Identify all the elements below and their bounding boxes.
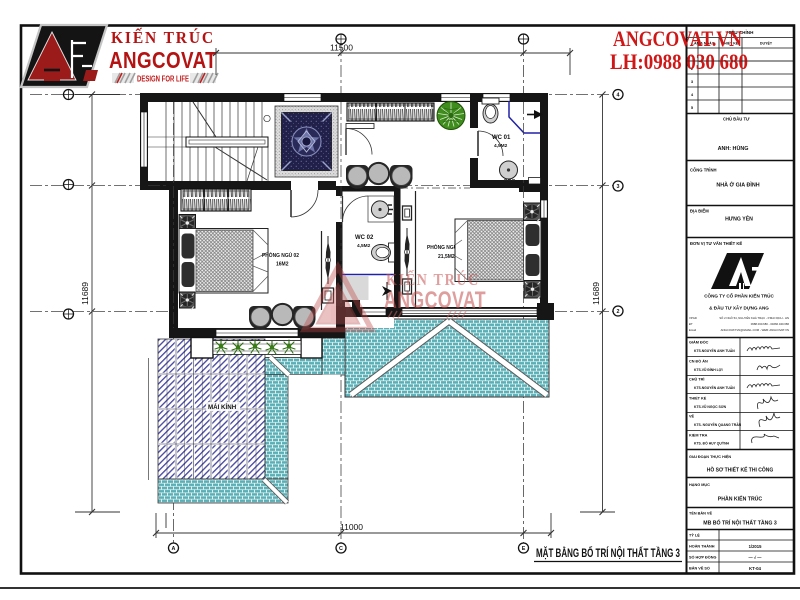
svg-text:CN ĐỒ ÁN: CN ĐỒ ÁN [689,359,708,364]
svg-text:ĐỊA ĐIỂM: ĐỊA ĐIỂM [690,209,709,214]
svg-text:MB BỐ TRÍ NỘI THẤT TẦNG 3: MB BỐ TRÍ NỘI THẤT TẦNG 3 [703,519,777,527]
svg-text:PHẦN KIẾN TRÚC: PHẦN KIẾN TRÚC [718,496,763,503]
svg-text:CÔNG TY CỔ PHẦN KIẾN TRÚC: CÔNG TY CỔ PHẦN KIẾN TRÚC [704,292,774,299]
svg-text:— √ —: — √ — [748,555,762,560]
svg-text:ĐƠN VỊ TƯ VẤN THIẾT KẾ: ĐƠN VỊ TƯ VẤN THIẾT KẾ [690,241,742,246]
svg-text:ANGCOVAT: ANGCOVAT [109,47,217,73]
svg-text:HỒ SƠ THIẾT KẾ THI CÔNG: HỒ SƠ THIẾT KẾ THI CÔNG [707,466,774,474]
svg-text:0988.030.680 - 04666.040.686: 0988.030.680 - 04666.040.686 [751,322,790,326]
svg-text:ANGCOVAT: ANGCOVAT [384,287,486,314]
svg-text:Email: Email [689,328,696,332]
svg-text:ĐT: ĐT [689,322,693,326]
svg-text:KTS. ĐỖ HUY QUỲNH: KTS. ĐỖ HUY QUỲNH [694,441,730,446]
svg-text:21,5M2: 21,5M2 [438,254,455,260]
svg-text:11689: 11689 [80,282,90,305]
svg-text:11689: 11689 [591,282,601,305]
svg-text:4,5M2: 4,5M2 [494,143,508,149]
svg-text:SỐ HỢP ĐỒNG: SỐ HỢP ĐỒNG [689,555,716,560]
svg-text:NHÀ Ở GIA ĐÌNH: NHÀ Ở GIA ĐÌNH [716,181,759,189]
svg-text:VẼ: VẼ [689,414,695,419]
svg-text:GIAI ĐOẠN THỰC HIỆN: GIAI ĐOẠN THỰC HIỆN [689,454,731,459]
svg-text:TÊN BẢN VẼ: TÊN BẢN VẼ [689,511,712,516]
svg-text:CHỦ TRÌ: CHỦ TRÌ [689,377,704,382]
svg-text:WC 02: WC 02 [355,235,374,241]
svg-text:KTS. NGUYỄN QUANG TRẦN: KTS. NGUYỄN QUANG TRẦN [694,422,742,427]
svg-text:2: 2 [617,309,620,315]
svg-text:CHỦ ĐẦU TƯ: CHỦ ĐẦU TƯ [723,117,750,122]
svg-text:KT-04: KT-04 [749,566,762,571]
svg-text:HOÀN THÀNH: HOÀN THÀNH [689,544,715,549]
svg-text:KIỂM TRA: KIỂM TRA [689,433,708,438]
svg-text:1/2015: 1/2015 [749,544,762,549]
svg-text:MÁI KÍNH: MÁI KÍNH [208,403,237,411]
svg-text:HẠNG MỤC: HẠNG MỤC [689,483,710,487]
svg-text:E: E [522,546,526,552]
svg-text:KTS.VŨ NGỌC SƠN: KTS.VŨ NGỌC SƠN [694,404,727,409]
svg-text:DESIGN FOR LIFE: DESIGN FOR LIFE [137,75,189,84]
svg-text:A: A [172,546,176,552]
svg-text:KTS.NGUYỄN ANH TUẤN: KTS.NGUYỄN ANH TUẤN [694,348,735,353]
svg-text:GIÁM ĐỐC: GIÁM ĐỐC [689,340,709,345]
svg-text:PHÒNG NGỦ 02: PHÒNG NGỦ 02 [262,251,300,259]
svg-text:LH:0988 030 680: LH:0988 030 680 [610,49,748,74]
svg-text:16M2: 16M2 [276,262,289,268]
svg-text:TỶ LỆ: TỶ LỆ [689,533,700,538]
svg-text:KIẾN TRÚC: KIẾN TRÚC [111,28,215,47]
svg-text:MẶT BẰNG BỐ TRÍ NỘI THẤT TẦNG: MẶT BẰNG BỐ TRÍ NỘI THẤT TẦNG 3 [536,545,680,560]
svg-text:HƯNG YÊN: HƯNG YÊN [725,215,753,223]
svg-text:WC 01: WC 01 [492,135,511,141]
svg-text:SỐ 2 NGÕ 54, NGUYỄN KHẢ TRẠC -: SỐ 2 NGÕ 54, NGUYỄN KHẢ TRẠC - P.MAI DỊC… [719,315,789,320]
svg-text:KTS.NGUYỄN ANH TUẤN: KTS.NGUYỄN ANH TUẤN [694,385,735,390]
svg-text:ANGCOVAT.VN: ANGCOVAT.VN [613,26,742,51]
svg-text:VPGD: VPGD [689,316,697,320]
svg-text:THIẾT KẾ: THIẾT KẾ [689,396,707,401]
svg-text:& ĐẦU TƯ XÂY DỰNG ANG: & ĐẦU TƯ XÂY DỰNG ANG [709,305,769,311]
svg-text:ANH: HÙNG: ANH: HÙNG [718,145,749,152]
svg-text:BẢN VẼ SỐ: BẢN VẼ SỐ [689,566,710,571]
svg-text:KTS.VŨ ĐÌNH LỢI: KTS.VŨ ĐÌNH LỢI [694,367,723,372]
svg-text:4: 4 [617,93,620,99]
svg-text:4,5M2: 4,5M2 [357,243,371,249]
svg-text:DUYỆT: DUYỆT [760,41,773,46]
svg-text:ANGCOVAT.VN@GMAIL.COM - WEB: A: ANGCOVAT.VN@GMAIL.COM - WEB: ANGCOVAT.VN [721,328,789,332]
svg-text:C: C [339,546,343,552]
svg-text:3: 3 [617,184,620,190]
svg-text:CÔNG TRÌNH: CÔNG TRÌNH [690,168,717,173]
svg-text:11000: 11000 [340,522,363,532]
